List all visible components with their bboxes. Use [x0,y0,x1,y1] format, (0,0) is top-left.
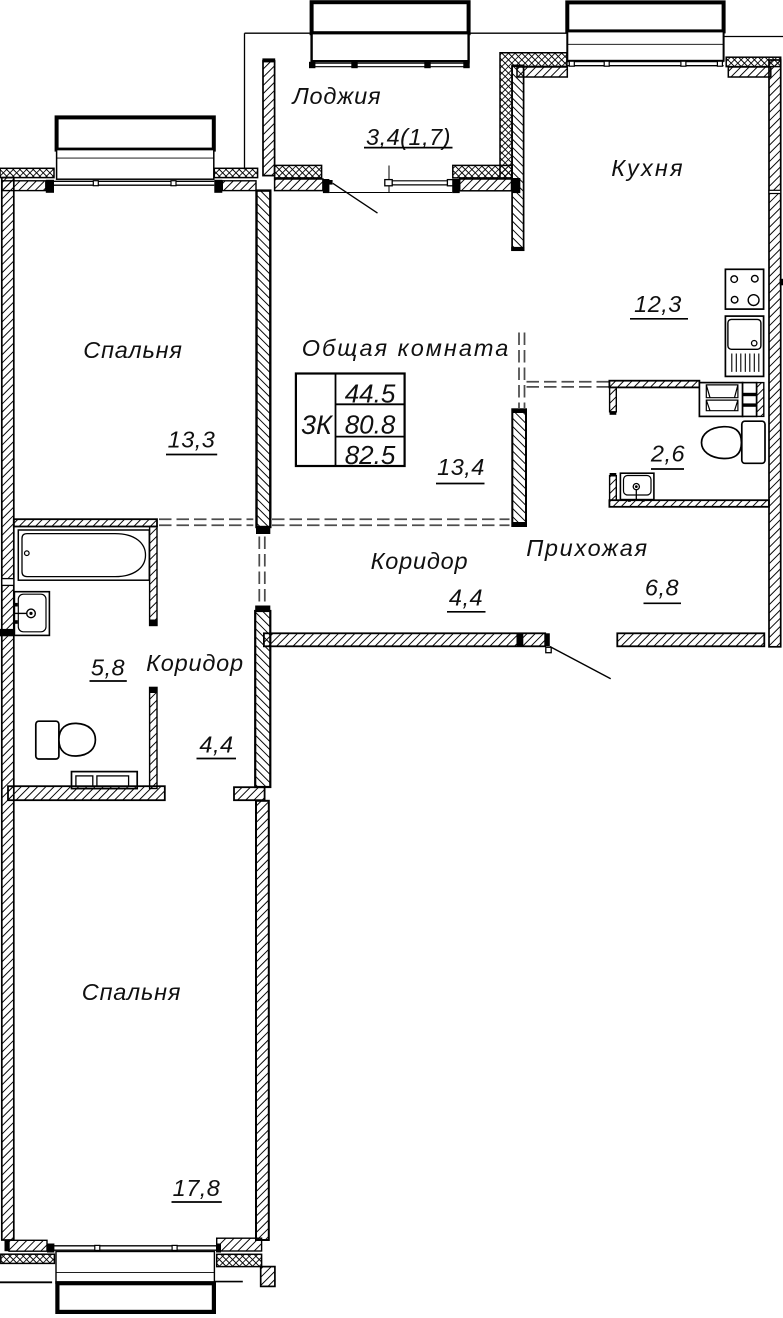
svg-text:3,4(1,7): 3,4(1,7) [366,124,451,150]
svg-text:4,4: 4,4 [449,585,483,611]
svg-text:44.5: 44.5 [345,378,396,408]
svg-text:13,4: 13,4 [437,454,485,480]
svg-text:12,3: 12,3 [634,291,682,317]
svg-text:5,8: 5,8 [91,655,125,681]
svg-text:Лоджия: Лоджия [291,83,382,109]
svg-text:82.5: 82.5 [345,440,396,470]
svg-text:Прихожая: Прихожая [526,535,649,561]
svg-text:3К: 3К [301,410,334,440]
svg-text:80.8: 80.8 [345,409,396,439]
svg-text:6,8: 6,8 [645,575,679,601]
svg-text:2,6: 2,6 [650,441,686,467]
svg-text:4,4: 4,4 [199,732,233,758]
svg-text:Спальня: Спальня [82,979,181,1005]
svg-text:Кухня: Кухня [611,155,685,181]
svg-text:Коридор: Коридор [146,650,244,676]
svg-text:17,8: 17,8 [173,1175,221,1201]
svg-text:Спальня: Спальня [83,337,182,363]
svg-text:13,3: 13,3 [168,427,216,453]
svg-text:Общая комната: Общая комната [302,335,511,361]
svg-text:Коридор: Коридор [371,548,469,574]
